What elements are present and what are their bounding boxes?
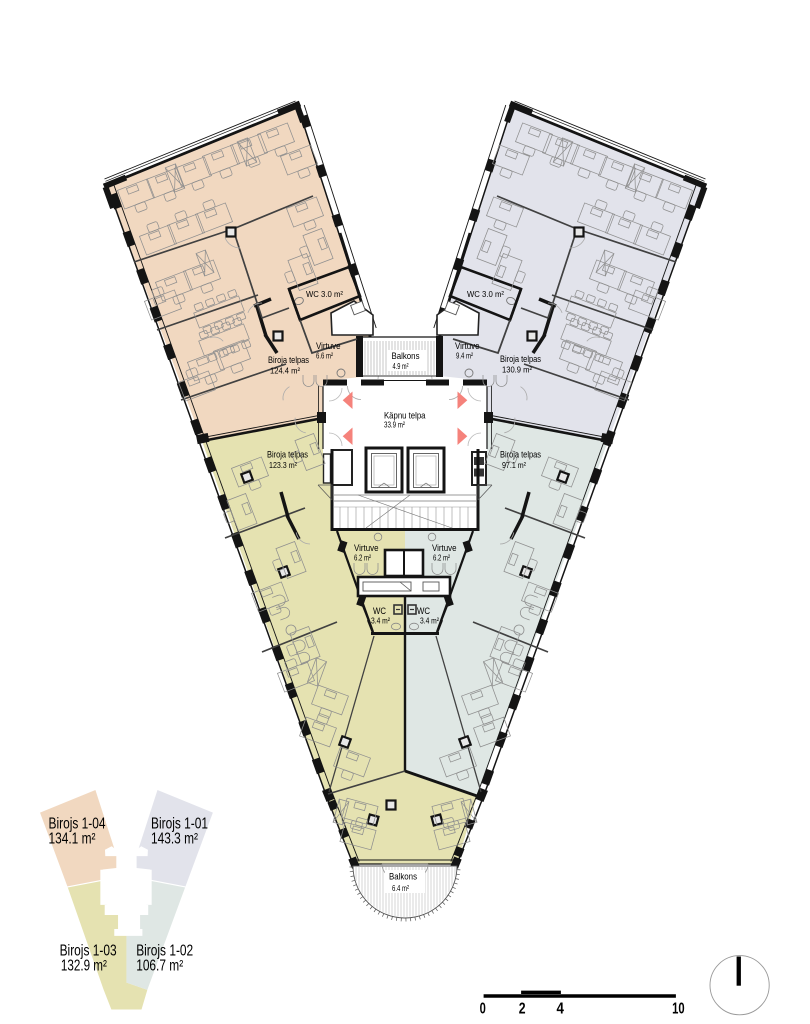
svg-text:4.9 m²: 4.9 m² xyxy=(393,361,409,371)
svg-text:Biroja telpas: Biroja telpas xyxy=(267,450,308,460)
svg-text:3.4 m²: 3.4 m² xyxy=(371,616,390,626)
svg-text:2: 2 xyxy=(519,1001,526,1018)
svg-text:WC: WC xyxy=(373,606,386,616)
svg-text:4: 4 xyxy=(557,1001,565,1018)
svg-text:97.1 m²: 97.1 m² xyxy=(502,460,526,470)
svg-text:10: 10 xyxy=(672,1001,685,1018)
svg-text:3.4 m²: 3.4 m² xyxy=(420,616,439,626)
svg-text:134.1 m²: 134.1 m² xyxy=(49,831,96,848)
svg-text:Virtuve: Virtuve xyxy=(432,543,457,553)
svg-text:130.9 m²: 130.9 m² xyxy=(502,365,532,375)
svg-text:Virtuve: Virtuve xyxy=(316,341,341,351)
svg-text:6.2 m²: 6.2 m² xyxy=(354,553,371,563)
svg-text:Balkons: Balkons xyxy=(392,351,420,361)
svg-text:6.4 m²: 6.4 m² xyxy=(392,883,409,893)
svg-text:Biroja telpas: Biroja telpas xyxy=(500,354,541,364)
svg-text:33.9 m²: 33.9 m² xyxy=(384,420,405,430)
svg-text:WC 3.0 m²: WC 3.0 m² xyxy=(306,289,343,299)
svg-text:Biroja telpas: Biroja telpas xyxy=(268,355,309,365)
svg-text:6.2 m²: 6.2 m² xyxy=(433,553,450,563)
svg-text:132.9 m²: 132.9 m² xyxy=(61,957,107,974)
svg-text:WC: WC xyxy=(417,606,430,616)
svg-text:Virtuve: Virtuve xyxy=(455,341,480,351)
svg-text:WC 3.0 m²: WC 3.0 m² xyxy=(467,289,504,299)
svg-text:124.4 m²: 124.4 m² xyxy=(270,366,300,376)
svg-text:6.6 m²: 6.6 m² xyxy=(316,351,333,361)
svg-text:Balkons: Balkons xyxy=(389,872,417,882)
svg-text:106.7 m²: 106.7 m² xyxy=(136,957,183,974)
svg-text:Virtuve: Virtuve xyxy=(354,543,379,553)
svg-text:123.3 m²: 123.3 m² xyxy=(269,460,297,470)
svg-text:9.4 m²: 9.4 m² xyxy=(456,351,473,361)
svg-text:143.3 m²: 143.3 m² xyxy=(151,831,198,848)
svg-text:Biroja telpas: Biroja telpas xyxy=(500,450,541,460)
svg-text:0: 0 xyxy=(480,1001,486,1018)
